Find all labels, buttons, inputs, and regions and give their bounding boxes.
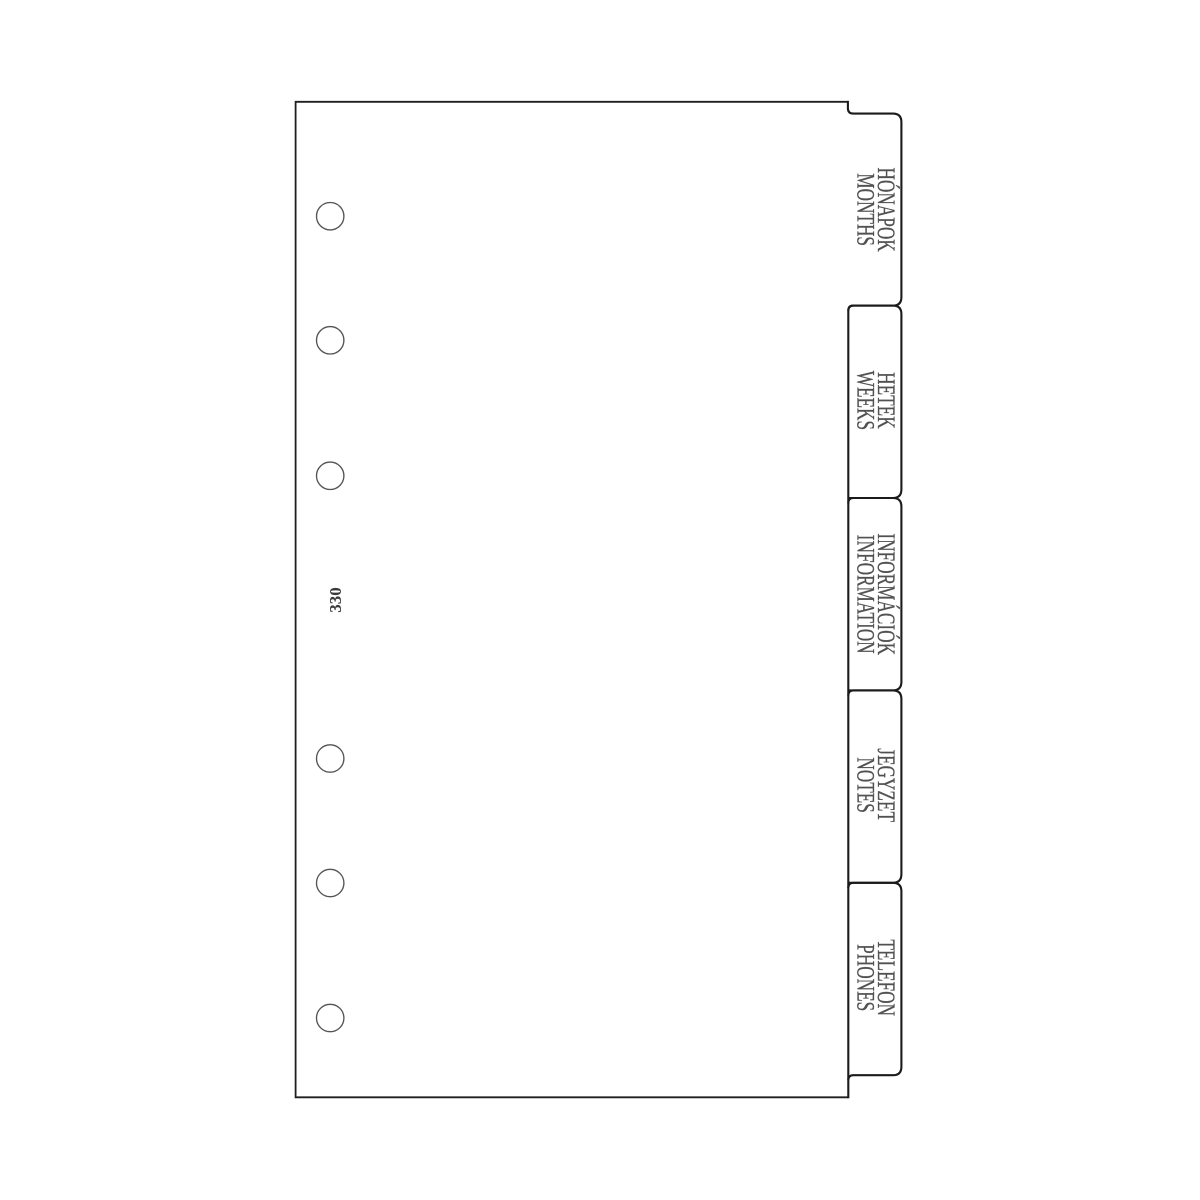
svg-text:330: 330 bbox=[326, 587, 345, 613]
svg-text:WEEKS: WEEKS bbox=[852, 371, 880, 430]
svg-text:NOTES: NOTES bbox=[852, 757, 880, 813]
svg-text:MONTHS: MONTHS bbox=[852, 173, 880, 246]
svg-text:PHONES: PHONES bbox=[852, 944, 880, 1011]
svg-text:INFORMATION: INFORMATION bbox=[852, 535, 880, 654]
